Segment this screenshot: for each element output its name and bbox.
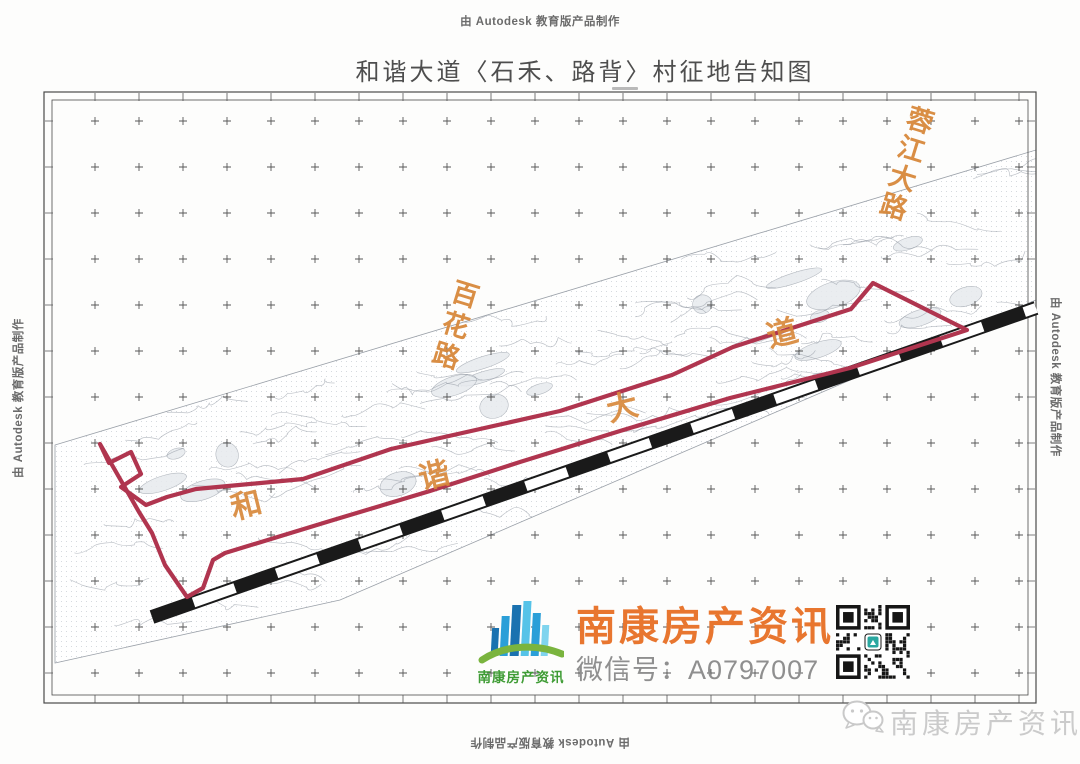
watermark-brand-text: 南康房产资讯 (890, 702, 1080, 742)
wechat-id-line: 微信号：A0797007 (576, 648, 819, 687)
brand-name: 南康房产资讯 (576, 594, 846, 652)
scanned-notice-page: 由 Autodesk 教育版产品制作 由 Autodesk 教育版产品制作 由 … (0, 0, 1080, 764)
topo-map-strip (55, 150, 1078, 663)
brand-logo-caption: 南康房产资讯 (468, 666, 574, 686)
wechat-icon (840, 698, 886, 738)
brand-logo-icon (478, 592, 564, 666)
bottom-watermark: 南康房产资讯 (840, 698, 1080, 743)
qr-code (836, 605, 910, 679)
